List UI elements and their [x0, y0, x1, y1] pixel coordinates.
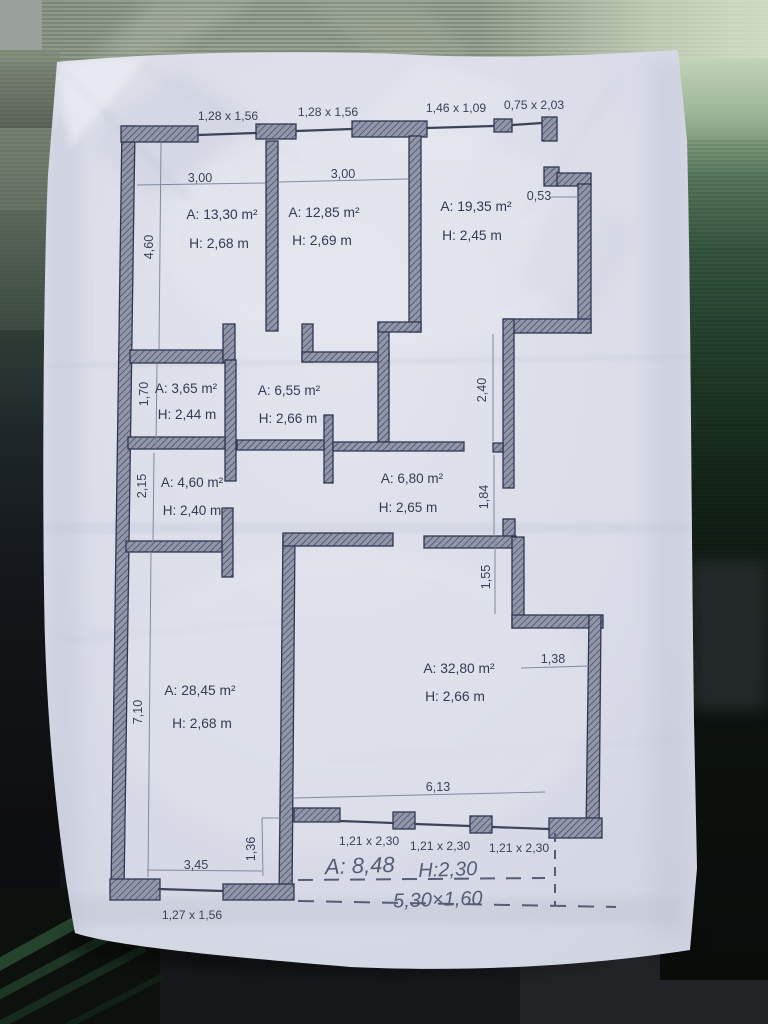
svg-text:A: 4,60 m²: A: 4,60 m²: [161, 475, 224, 490]
svg-text:A: 32,80 m²: A: 32,80 m²: [423, 661, 495, 676]
svg-text:7,10: 7,10: [131, 700, 145, 725]
svg-text:6,13: 6,13: [426, 780, 451, 794]
svg-text:H: 2,69 m: H: 2,69 m: [292, 233, 352, 248]
svg-text:H: 2,66 m: H: 2,66 m: [259, 411, 318, 426]
svg-text:2,15: 2,15: [135, 474, 149, 499]
svg-text:H: 2,68 m: H: 2,68 m: [189, 236, 249, 251]
svg-text:A: 6,80 m²: A: 6,80 m²: [381, 471, 444, 486]
svg-text:H: 2,66 m: H: 2,66 m: [425, 689, 485, 704]
svg-text:A: 28,45 m²: A: 28,45 m²: [164, 683, 236, 698]
svg-text:A: 6,55 m²: A: 6,55 m²: [258, 383, 321, 398]
svg-text:H: 2,45 m: H: 2,45 m: [442, 228, 502, 243]
svg-text:1,46 x 1,09: 1,46 x 1,09: [426, 101, 487, 115]
svg-text:H: 2,44 m: H: 2,44 m: [158, 407, 217, 422]
svg-text:A: 19,35 m²: A: 19,35 m²: [440, 199, 512, 214]
svg-text:3,00: 3,00: [331, 167, 356, 181]
svg-text:A: 12,85 m²: A: 12,85 m²: [288, 205, 360, 220]
svg-text:1,38: 1,38: [541, 652, 566, 666]
svg-text:A: 13,30 m²: A: 13,30 m²: [186, 207, 258, 222]
svg-text:1,21 x 2,30: 1,21 x 2,30: [410, 839, 471, 853]
svg-text:1,84: 1,84: [477, 485, 491, 510]
svg-text:1,70: 1,70: [137, 382, 151, 407]
svg-text:3,45: 3,45: [184, 858, 209, 872]
svg-text:1,28 x 1,56: 1,28 x 1,56: [298, 105, 359, 119]
svg-text:1,21 x 2,30: 1,21 x 2,30: [339, 834, 400, 848]
svg-text:H:2,30: H:2,30: [418, 858, 478, 882]
svg-text:A: 3,65 m²: A: 3,65 m²: [155, 381, 218, 396]
svg-text:1,21 x 2,30: 1,21 x 2,30: [489, 841, 550, 855]
svg-text:0,75 x 2,03: 0,75 x 2,03: [504, 98, 565, 112]
svg-text:0,53: 0,53: [527, 189, 552, 203]
svg-text:1,36: 1,36: [244, 837, 258, 862]
svg-text:4,60: 4,60: [142, 235, 156, 260]
svg-text:3,00: 3,00: [188, 171, 213, 185]
svg-text:1,28 x 1,56: 1,28 x 1,56: [198, 109, 259, 123]
svg-text:H: 2,65 m: H: 2,65 m: [379, 500, 438, 515]
svg-text:1,55: 1,55: [479, 565, 493, 590]
svg-text:2,40: 2,40: [475, 378, 489, 403]
svg-text:1,27 x 1,56: 1,27 x 1,56: [162, 908, 223, 922]
svg-text:H: 2,68 m: H: 2,68 m: [172, 716, 232, 731]
svg-text:A: 8,48: A: 8,48: [322, 852, 395, 880]
svg-text:5,30×1,60: 5,30×1,60: [393, 887, 483, 912]
svg-text:H: 2,40 m: H: 2,40 m: [163, 503, 222, 518]
